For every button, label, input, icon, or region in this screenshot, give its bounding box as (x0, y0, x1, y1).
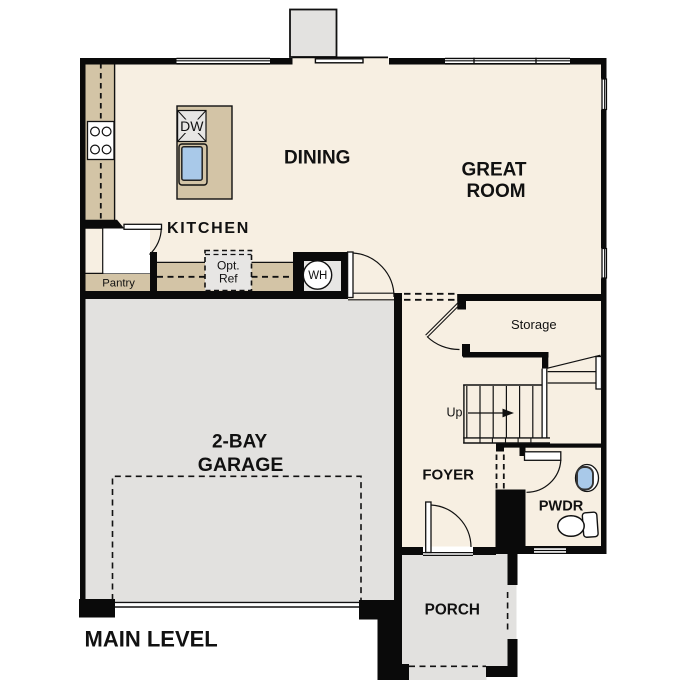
svg-text:ROOM: ROOM (466, 181, 525, 202)
svg-text:MAIN LEVEL: MAIN LEVEL (85, 627, 218, 652)
svg-text:WH: WH (308, 270, 327, 282)
svg-text:2-BAY: 2-BAY (212, 432, 268, 453)
svg-text:KITCHEN: KITCHEN (167, 220, 250, 237)
svg-text:FOYER: FOYER (422, 467, 474, 484)
svg-text:Storage: Storage (511, 317, 557, 332)
svg-text:DW: DW (180, 118, 204, 134)
svg-text:PWDR: PWDR (539, 498, 584, 514)
svg-text:Pantry: Pantry (102, 278, 135, 290)
svg-text:Up: Up (447, 406, 463, 420)
svg-text:GARAGE: GARAGE (198, 454, 284, 476)
svg-text:Ref: Ref (219, 272, 238, 286)
svg-text:DINING: DINING (284, 148, 351, 169)
svg-text:PORCH: PORCH (425, 601, 480, 618)
svg-text:GREAT: GREAT (461, 159, 526, 180)
